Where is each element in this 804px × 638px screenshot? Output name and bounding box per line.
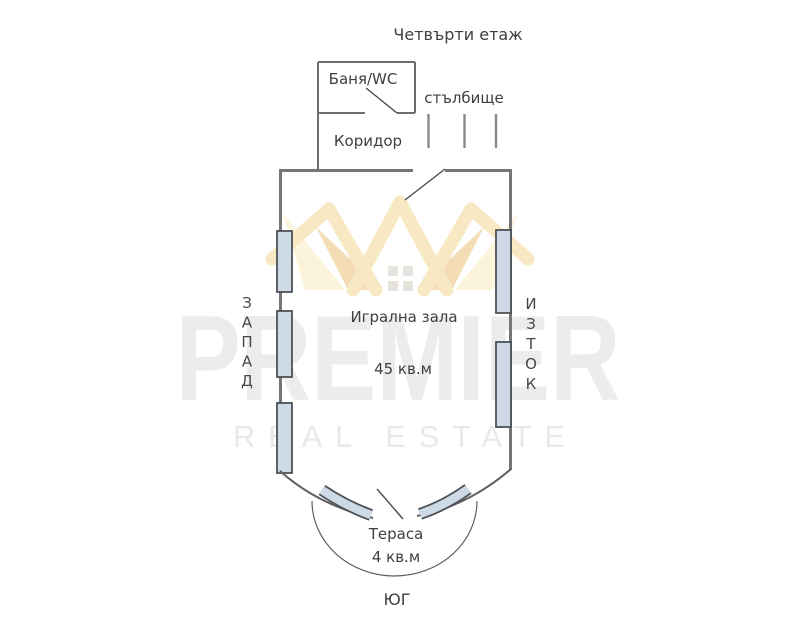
compass-east-letter: И: [525, 295, 536, 313]
compass-east-letter: К: [526, 375, 537, 393]
staircase: [429, 114, 497, 148]
stairs-label: стълбище: [424, 89, 504, 107]
bath-label: Баня/WC: [329, 70, 398, 88]
compass-east-letter: З: [526, 315, 536, 333]
compass-west-label: З А П А Д: [241, 294, 253, 390]
top-door-line: [405, 169, 445, 200]
hall-area-label: 45 кв.м: [374, 360, 432, 378]
stair-step-lines: [429, 114, 497, 148]
corridor-label: Коридор: [334, 132, 402, 150]
floor-plan-svg: PREMIER REAL ESTATE: [0, 0, 804, 638]
logo-window-squares: [388, 266, 413, 291]
crown-logo: [272, 202, 528, 291]
page-title: Четвърти етаж: [393, 25, 522, 44]
compass-west-letter: А: [242, 353, 253, 371]
compass-east-letter: Т: [525, 335, 536, 353]
terrace-door-line: [377, 489, 403, 519]
compass-west-letter: А: [242, 314, 253, 332]
compass-west-letter: Д: [241, 372, 253, 390]
compass-east-letter: О: [525, 355, 537, 373]
compass-west-letter: П: [241, 333, 252, 351]
terrace-label: Тераса: [368, 525, 424, 543]
compass-east-label: И З Т О К: [525, 295, 537, 393]
window-left-1: [277, 231, 292, 292]
floor-plan-page: PREMIER REAL ESTATE: [0, 0, 804, 638]
bath-door-line: [366, 88, 397, 113]
terrace-area-label: 4 кв.м: [372, 548, 420, 566]
window-left-3: [277, 403, 292, 473]
window-right-1: [496, 230, 511, 313]
compass-south-label: ЮГ: [383, 590, 410, 609]
window-right-2: [496, 342, 511, 427]
hall-label: Игрална зала: [350, 308, 457, 326]
compass-west-letter: З: [242, 294, 252, 312]
window-left-2: [277, 311, 292, 377]
